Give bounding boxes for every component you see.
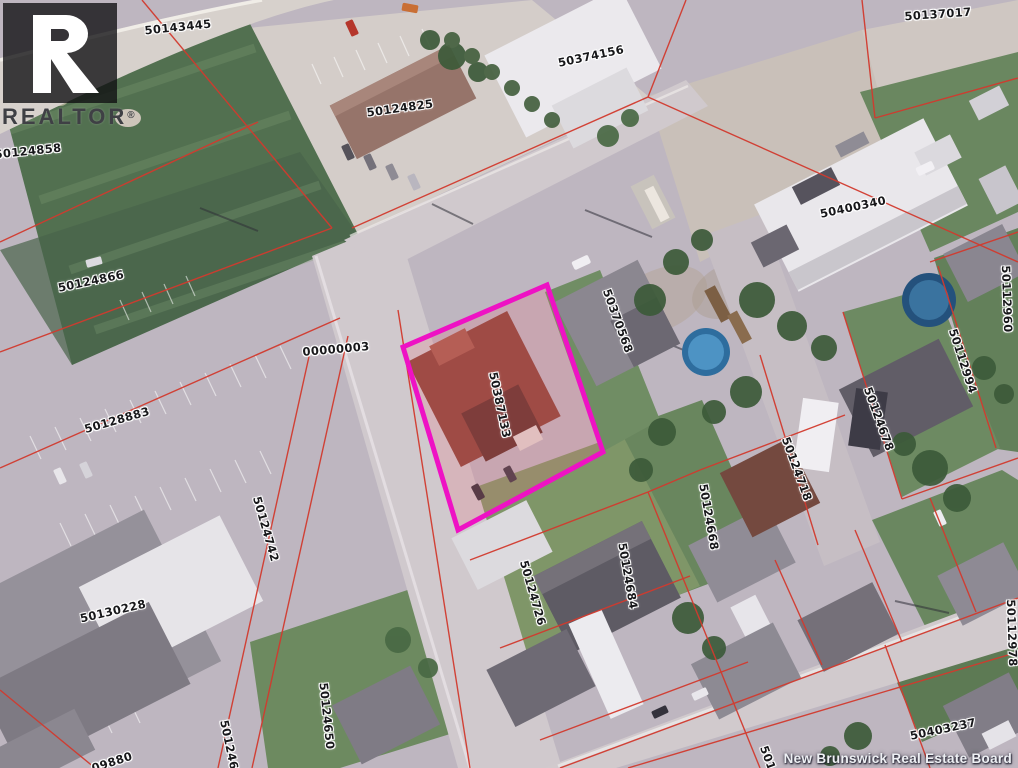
registered-mark: ® [127,110,134,121]
realtor-logo-text: REALTOR® [2,104,135,130]
realtor-word: REALTOR [2,104,127,129]
realtor-r-glyph [3,3,117,103]
aerial-map [0,0,1018,768]
attribution-text: New Brunswick Real Estate Board [784,751,1012,766]
realtor-logo-icon [3,3,117,103]
realtor-watermark: REALTOR® [0,0,150,145]
aerial-map-viewport: 5014344550137017503741565012482550124858… [0,0,1018,768]
